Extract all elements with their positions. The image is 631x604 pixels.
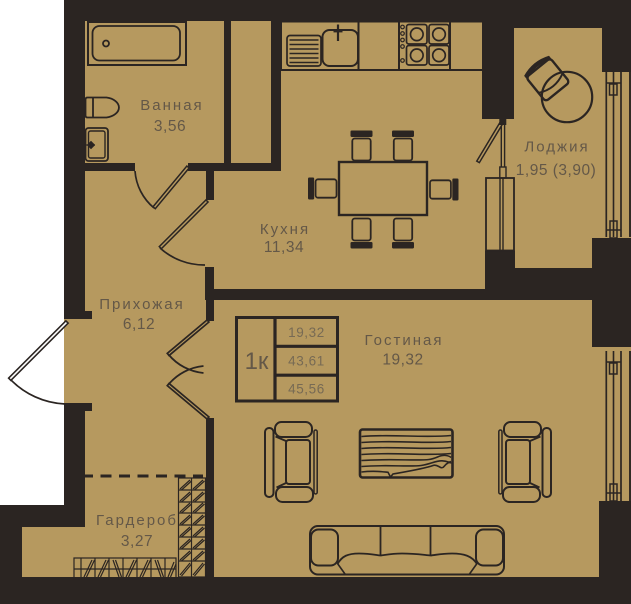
svg-text:45,56: 45,56 [288,382,325,397]
svg-text:Гардероб: Гардероб [96,512,178,529]
svg-text:Ванная: Ванная [140,97,203,114]
svg-text:1к: 1к [245,348,269,375]
svg-text:19,32: 19,32 [288,325,325,340]
svg-text:Гостиная: Гостиная [365,332,444,349]
svg-text:6,12: 6,12 [123,316,155,333]
svg-text:Кухня: Кухня [260,221,310,238]
svg-text:1,95 (3,90): 1,95 (3,90) [516,162,596,179]
svg-text:Лоджия: Лоджия [524,139,589,156]
svg-text:19,32: 19,32 [382,352,423,369]
svg-text:3,27: 3,27 [121,533,153,550]
svg-text:Прихожая: Прихожая [99,296,185,313]
svg-text:43,61: 43,61 [288,354,325,369]
svg-text:3,56: 3,56 [154,118,186,135]
svg-text:11,34: 11,34 [264,239,304,256]
